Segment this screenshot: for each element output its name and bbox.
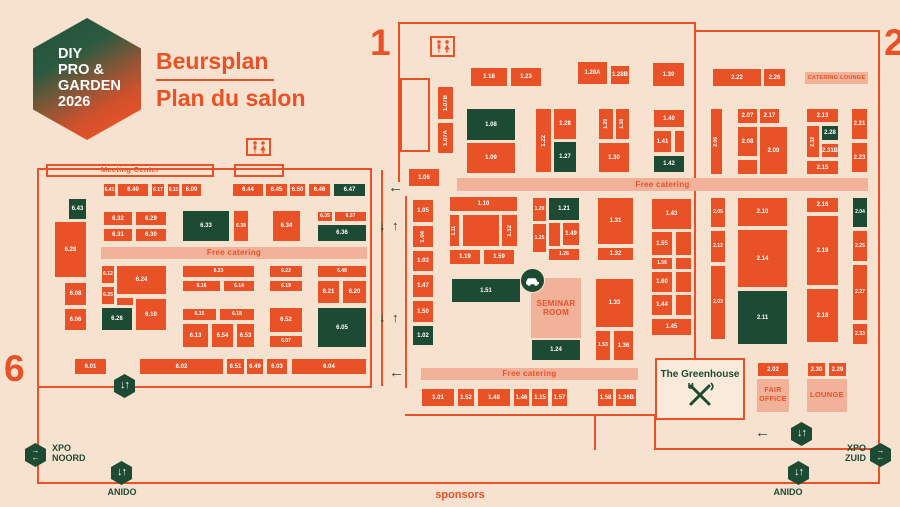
booth-label: 1.04 [420, 231, 426, 243]
booth-label: 1.07B [443, 95, 449, 111]
booth-6.22: 6.22 [269, 265, 303, 278]
title-dutch: Beursplan [156, 48, 306, 74]
booth-1.12: 1.12 [501, 214, 518, 247]
booth-1.03: 1.03 [412, 250, 434, 272]
booth-label: 1.58 [600, 395, 612, 401]
booth-1.38: 1.38 [615, 108, 630, 140]
booth-1.06: 1.06 [408, 168, 440, 187]
banner-meeting-center: Meeting Center [46, 164, 214, 177]
banner-text: SEMINAR [537, 299, 576, 308]
booth-label: 6.14 [234, 284, 244, 289]
booth-6.31: 6.31 [103, 228, 133, 242]
booth-6.33: 6.33 [182, 210, 230, 242]
booth-2.27: 2.27 [852, 264, 868, 321]
booth-2.05: 2.05 [710, 197, 726, 228]
booth-6.47: 6.47 [333, 183, 366, 197]
booth-label: 1.25 [535, 236, 545, 241]
booth-6.41: 6.41 [103, 183, 116, 197]
booth-label: 2.03 [713, 300, 723, 305]
booth-unlabeled [675, 271, 692, 293]
booth-1.02: 1.02 [412, 325, 434, 346]
booth-label: 6.50 [292, 187, 304, 193]
booth-1.19: 1.19 [449, 249, 481, 265]
booth-1.47: 1.47 [412, 274, 434, 298]
booth-label: 2.23 [854, 155, 866, 161]
booth-6.34: 6.34 [272, 210, 301, 242]
booth-6.49: 6.49 [246, 358, 264, 375]
banner-text: LOUNGE [810, 391, 844, 400]
booth-2.14: 2.14 [737, 229, 788, 288]
booth-label: 1.43 [666, 211, 678, 217]
booth-6.43: 6.43 [68, 198, 87, 220]
wall-line [37, 482, 880, 484]
booth-label: 6.11 [169, 188, 178, 193]
title-divider [156, 79, 274, 81]
entrance-icon: →← [25, 443, 46, 467]
booth-label: 1.39 [663, 72, 675, 78]
booth-6.37: 6.37 [334, 211, 367, 222]
booth-label: 1.09 [485, 155, 497, 161]
booth-2.09: 2.09 [759, 126, 788, 175]
wayfinding-text: ZUID [822, 453, 866, 463]
booth-1.45: 1.45 [651, 318, 692, 336]
booth-label: 6.28 [65, 247, 77, 253]
booth-2.10: 2.10 [737, 197, 788, 227]
booth-label: 2.08 [742, 139, 754, 145]
booth-label: 6.45 [271, 187, 283, 193]
booth-2.30: 2.30 [807, 362, 826, 377]
fork-knife-icon [685, 381, 715, 409]
booth-label: 6.13 [190, 333, 202, 339]
booth-1.48: 1.48 [477, 388, 511, 407]
booth-label: 1.38 [620, 119, 625, 129]
booth-1.57: 1.57 [551, 388, 568, 407]
booth-6.26: 6.26 [101, 307, 133, 331]
booth-label: 1.49 [565, 231, 577, 237]
booth-label: 6.54 [217, 333, 229, 339]
booth-label: 6.37 [346, 214, 356, 219]
booth-6.20: 6.20 [342, 280, 367, 304]
booth-label: 6.24 [136, 277, 148, 283]
booth-label: 6.49 [249, 364, 261, 370]
booth-label: 1.27 [559, 154, 571, 160]
booth-label: 1.15 [534, 395, 546, 401]
banner-lounge: LOUNGE [807, 379, 847, 412]
booth-1.18: 1.18 [470, 67, 508, 87]
banner-free-catering: Free catering [457, 178, 868, 191]
booth-6.15: 6.15 [182, 308, 217, 321]
booth-label: 2.13 [817, 113, 829, 119]
banner-text: CATERING LOUNGE [808, 75, 866, 81]
booth-label: 2.21 [854, 121, 866, 127]
booth-1.36: 1.36 [613, 330, 634, 361]
label-anido: ANIDO [100, 487, 144, 497]
booth-1.09: 1.09 [466, 142, 516, 174]
booth-label: 2.26 [769, 75, 781, 81]
booth-1.59: 1.59 [483, 249, 515, 265]
booth-6.28: 6.28 [54, 221, 87, 278]
booth-label: 6.44 [242, 187, 254, 193]
booth-label: 1.28 [559, 121, 571, 127]
booth-label: 1.46 [516, 395, 528, 401]
booth-6.11: 6.11 [167, 183, 180, 197]
booth-2.03: 2.03 [710, 265, 726, 340]
booth-1.10: 1.10 [449, 196, 518, 212]
booth-label: 2.09 [768, 148, 780, 154]
booth-1.60: 1.60 [651, 271, 673, 293]
booth-6.01: 6.01 [74, 358, 107, 375]
banner-text: Free catering [502, 369, 556, 378]
booth-label: 1.28B [612, 72, 628, 78]
booth-6.05: 6.05 [317, 307, 367, 348]
booth-1.58: 1.58 [597, 388, 614, 407]
booth-1.53: 1.53 [595, 330, 611, 361]
booth-1.51: 1.51 [451, 278, 521, 303]
booth-2.33: 2.33 [852, 323, 868, 345]
booth-label: 1.60 [656, 279, 668, 285]
booth-label: 6.06 [70, 317, 82, 323]
booth-label: 2.04 [855, 210, 865, 215]
booth-1.26: 1.26 [548, 248, 580, 261]
wayfinding-text: NOORD [52, 453, 94, 463]
booth-1.27: 1.27 [553, 141, 577, 173]
booth-label: 1.32 [610, 251, 622, 257]
booth-1.36B: 1.36B [615, 388, 637, 407]
booth-label: 1.36B [618, 395, 634, 401]
floor-plan: DIY PRO & GARDEN 2026 Beursplan Plan du … [0, 0, 900, 507]
booth-label: 1.11 [452, 226, 457, 235]
booth-label: 2.11 [757, 315, 768, 321]
booth-2.18: 2.18 [806, 288, 839, 343]
booth-6.36: 6.36 [317, 224, 367, 242]
booth-1.28: 1.28 [553, 108, 577, 140]
booth-label: 6.36 [336, 230, 348, 236]
logo-line: GARDEN [58, 79, 141, 95]
hall-number-2: 2 [884, 24, 900, 61]
booth-6.40: 6.40 [117, 183, 149, 197]
booth-6.03: 6.03 [266, 358, 288, 375]
booth-label: 1.42 [663, 161, 675, 167]
booth-label: 6.05 [336, 325, 348, 331]
wall-line [398, 22, 696, 24]
booth-label: 1.26 [559, 252, 569, 257]
booth-label: 1.23 [520, 74, 532, 80]
wall-line [405, 196, 407, 388]
escalator-icon: ↓↑ [791, 422, 812, 446]
banner-text: Free catering [635, 180, 689, 189]
label-xpo-zuid: XPOZUID [822, 443, 866, 464]
booth-2.26: 2.26 [763, 68, 786, 87]
wall-line [400, 78, 430, 152]
booth-label: 6.34 [281, 223, 293, 229]
booth-label: 1.01 [432, 395, 444, 401]
booth-label: 1.12 [507, 225, 513, 237]
direction-arrow-left-icon: ← [755, 425, 770, 440]
booth-1.46: 1.46 [513, 388, 530, 407]
booth-6.08: 6.08 [64, 282, 87, 306]
booth-label: 6.15 [195, 312, 205, 317]
booth-label: 2.32 [811, 137, 816, 147]
booth-label: 6.07 [281, 339, 291, 344]
booth-label: 6.12 [103, 272, 113, 277]
booth-1.29: 1.29 [598, 108, 614, 140]
booth-1.21: 1.21 [548, 197, 580, 221]
booth-2.23: 2.23 [851, 142, 868, 173]
direction-arrow-down-icon: ↓ [379, 311, 386, 324]
banner-catering-lounge: CATERING LOUNGE [805, 72, 868, 84]
booth-1.22: 1.22 [535, 108, 552, 173]
booth-label: 1.59 [493, 254, 505, 260]
booth-1.25: 1.25 [532, 223, 547, 253]
wayfinding-text: XPO [822, 443, 866, 453]
wall-line [694, 22, 696, 360]
booth-1.39: 1.39 [652, 62, 685, 87]
wayfinding-text: ANIDO [100, 487, 144, 497]
booth-label: 1.33 [609, 300, 621, 306]
booth-label: 1.48 [488, 395, 500, 401]
booth-6.14: 6.14 [223, 280, 255, 292]
entrance-icon: →← [870, 443, 891, 467]
booth-1.41: 1.41 [653, 130, 672, 153]
booth-label: 1.41 [657, 139, 669, 145]
booth-label: 6.51 [230, 364, 242, 370]
booth-label: 6.01 [85, 364, 97, 370]
booth-label: 1.07A [443, 130, 449, 146]
booth-label: 6.17 [153, 188, 163, 193]
booth-6.46: 6.46 [308, 183, 331, 197]
wall-line [37, 388, 39, 484]
booth-label: 6.18 [232, 312, 242, 317]
booth-2.31B: 2.31B [821, 143, 839, 158]
booth-label: 1.18 [483, 74, 495, 80]
title-french: Plan du salon [156, 85, 306, 111]
direction-arrow-up-icon: ↑ [392, 311, 399, 324]
banner-text: OFFICE [759, 396, 786, 404]
booth-2.16: 2.16 [806, 197, 839, 213]
banner-fair-office: FAIROFFICE [757, 379, 789, 412]
booth-label: 6.10 [145, 312, 157, 318]
booth-label: 2.07 [742, 113, 754, 119]
booth-6.54: 6.54 [211, 323, 234, 348]
restroom-icon [246, 138, 271, 156]
booth-6.52: 6.52 [269, 307, 303, 333]
booth-label: 1.08 [485, 122, 497, 128]
booth-1.23: 1.23 [510, 67, 542, 87]
booth-label: 6.04 [323, 364, 335, 370]
booth-6.24: 6.24 [116, 265, 167, 295]
booth-1.42: 1.42 [653, 155, 685, 173]
booth-6.50: 6.50 [289, 183, 306, 197]
booth-2.22: 2.22 [712, 68, 762, 87]
booth-2.32: 2.32 [806, 125, 820, 158]
booth-6.16: 6.16 [182, 280, 221, 292]
booth-label: 1.24 [550, 347, 562, 353]
booth-label: 1.50 [417, 309, 429, 315]
booth-label: 1.55 [656, 241, 668, 247]
booth-1.33: 1.33 [595, 278, 634, 328]
booth-1.40: 1.40 [653, 109, 685, 128]
wall-line [37, 168, 372, 388]
booth-label: 2.16 [817, 202, 829, 208]
booth-label: 6.47 [344, 187, 356, 193]
booth-label: 6.16 [197, 284, 207, 289]
booth-label: 2.17 [764, 113, 776, 119]
restroom-icon [430, 36, 455, 57]
booth-label: 2.18 [817, 313, 829, 319]
direction-arrow-left-icon: ← [389, 365, 404, 380]
booth-label: 6.41 [105, 188, 115, 193]
booth-unlabeled [548, 222, 561, 247]
booth-label: 6.30 [145, 232, 157, 238]
booth-1.31: 1.31 [597, 197, 634, 245]
booth-6.10: 6.10 [135, 298, 167, 331]
greenhouse-label: The Greenhouse [661, 369, 740, 380]
booth-label: 6.25 [103, 293, 113, 298]
booth-unlabeled [674, 130, 685, 153]
booth-6.53: 6.53 [236, 323, 255, 348]
booth-1.05: 1.05 [412, 199, 434, 223]
booth-label: 6.38 [236, 224, 246, 229]
booth-label: 1.20 [535, 207, 545, 212]
booth-label: 2.05 [713, 210, 723, 215]
wall-line [381, 170, 383, 386]
wall-line [696, 30, 880, 32]
booth-6.19: 6.19 [269, 280, 303, 292]
booth-2.28: 2.28 [821, 125, 839, 141]
booth-6.09: 6.09 [181, 183, 202, 197]
banner-empty [234, 164, 284, 177]
booth-2.12: 2.12 [710, 230, 726, 263]
booth-label: 1.52 [460, 395, 472, 401]
booth-1.20: 1.20 [532, 197, 547, 222]
booth-label: 1.47 [417, 283, 429, 289]
booth-label: 2.12 [713, 244, 723, 249]
booth-unlabeled [675, 257, 692, 270]
booth-unlabeled [462, 214, 500, 247]
booth-6.17: 6.17 [151, 183, 165, 197]
booth-6.23: 6.23 [182, 265, 255, 278]
hall-number-1: 1 [370, 24, 391, 61]
booth-2.13: 2.13 [806, 108, 839, 123]
booth-label: 2.31B [822, 148, 838, 154]
booth-label: 6.29 [145, 216, 157, 222]
booth-2.02: 2.02 [757, 362, 789, 377]
page-title: Beursplan Plan du salon [156, 48, 306, 112]
logo-line: PRO & [58, 63, 141, 79]
booth-label: 1.22 [541, 135, 547, 147]
wall-line [594, 414, 596, 450]
booth-label: 6.03 [271, 364, 283, 370]
booth-1.56: 1.56 [651, 257, 673, 270]
booth-label: 6.26 [111, 316, 123, 322]
booth-label: 1.31 [610, 218, 622, 224]
booth-1.24: 1.24 [531, 339, 581, 361]
booth-label: 2.15 [817, 165, 829, 171]
logo-line: 2026 [58, 95, 141, 111]
booth-label: 6.20 [349, 289, 361, 295]
booth-1.08: 1.08 [466, 108, 516, 141]
booth-6.44: 6.44 [232, 183, 264, 197]
greenhouse-area: The Greenhouse [655, 358, 745, 420]
booth-6.18: 6.18 [219, 308, 255, 321]
booth-label: 6.48 [337, 269, 347, 274]
hall-number-6: 6 [4, 350, 25, 387]
booth-label: 6.22 [281, 269, 291, 274]
booth-label: 2.29 [832, 367, 844, 373]
booth-6.38: 6.38 [233, 210, 249, 242]
booth-label: 6.09 [186, 187, 198, 193]
banner-text: Free catering [207, 248, 261, 257]
logo-line: DIY [58, 47, 141, 63]
booth-1.01: 1.01 [421, 388, 455, 407]
booth-label: 1.03 [417, 258, 429, 264]
booth-1.11: 1.11 [449, 214, 460, 247]
booth-label: 2.02 [767, 367, 779, 373]
booth-2.21: 2.21 [851, 108, 868, 140]
booth-1.49: 1.49 [562, 222, 580, 246]
booth-label: 6.23 [214, 269, 224, 274]
booth-1.28A: 1.28A [577, 61, 608, 85]
booth-6.04: 6.04 [291, 358, 367, 375]
booth-label: 6.08 [70, 291, 82, 297]
booth-6.21: 6.21 [317, 280, 340, 304]
banner-free-catering: Free catering [421, 368, 638, 380]
label-anido: ANIDO [766, 487, 810, 497]
booth-2.11: 2.11 [737, 290, 788, 345]
wayfinding-text: sponsors [420, 489, 500, 502]
booth-label: 1.36 [618, 343, 630, 349]
booth-1.07B: 1.07B [437, 86, 454, 120]
booth-label: 2.22 [731, 75, 743, 81]
booth-6.35: 6.35 [317, 211, 333, 222]
booth-6.32: 6.32 [103, 211, 133, 226]
booth-label: 1.53 [598, 343, 608, 348]
booth-1.28B: 1.28B [610, 65, 630, 85]
booth-1.50: 1.50 [412, 300, 434, 323]
booth-label: 2.10 [757, 209, 769, 215]
booth-unlabeled [737, 159, 758, 175]
booth-label: 1.51 [480, 288, 492, 294]
booth-label: 6.53 [240, 333, 252, 339]
booth-1.15: 1.15 [531, 388, 549, 407]
booth-6.06: 6.06 [64, 308, 87, 331]
booth-label: 1.56 [657, 261, 667, 266]
booth-label: 6.02 [176, 364, 188, 370]
event-logo: DIY PRO & GARDEN 2026 [33, 18, 141, 140]
wall-line [405, 414, 656, 416]
booth-label: 2.25 [855, 244, 865, 249]
booth-6.30: 6.30 [135, 228, 167, 242]
booth-label: 6.40 [127, 187, 139, 193]
booth-1.55: 1.55 [651, 231, 673, 256]
booth-label: 2.06 [714, 137, 719, 147]
booth-label: 2.28 [824, 130, 836, 136]
booth-label: 1.57 [554, 395, 566, 401]
booth-label: 6.52 [280, 317, 292, 323]
booth-label: 2.14 [757, 256, 769, 262]
booth-label: 6.31 [112, 232, 124, 238]
booth-label: 1.28A [584, 70, 600, 76]
label-sponsors: sponsors [420, 489, 500, 502]
booth-label: 6.32 [112, 216, 124, 222]
booth-1.04: 1.04 [412, 225, 434, 248]
label-xpo-noord: XPONOORD [52, 443, 94, 464]
booth-label: 1.02 [417, 333, 429, 339]
banner-text: FAIR [764, 387, 781, 395]
banner-text: ROOM [543, 308, 569, 317]
booth-label: 2.30 [811, 367, 823, 373]
booth-label: 1.30 [608, 155, 620, 161]
